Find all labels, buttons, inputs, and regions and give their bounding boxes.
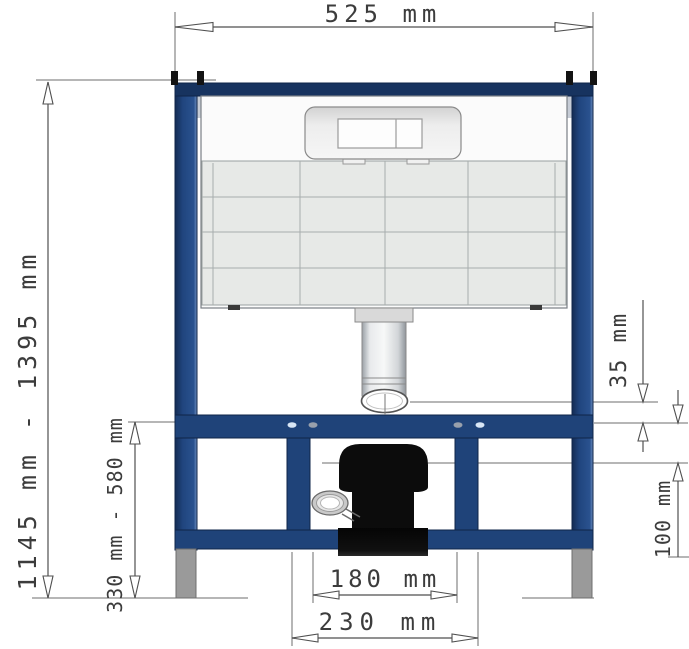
- frame-rail-left: [175, 83, 197, 550]
- waste-outlet-bend: [338, 444, 428, 556]
- frame-strut-right: [455, 438, 478, 530]
- wall-bracket-tab-2: [197, 71, 204, 85]
- cistern-foot-mark-right: [530, 305, 542, 310]
- arrow-230-left: [292, 634, 318, 642]
- arrow-1145-top: [43, 82, 53, 104]
- adjustable-foot-right: [572, 549, 592, 598]
- arrow-35-top: [638, 384, 648, 402]
- flush-pipe-flange: [355, 308, 413, 322]
- arrow-330-bottom: [130, 576, 140, 598]
- adjustable-foot-left: [176, 549, 196, 598]
- outlet-bend-flange: [338, 528, 428, 556]
- arrow-330-top: [130, 422, 140, 444]
- technical-drawing-wc-frame: 525 mm 1145 mm - 1395 mm 330 mm - 580 mm…: [0, 0, 689, 649]
- cistern-foot-mark-left: [228, 305, 240, 310]
- fixing-hole-1: [288, 422, 297, 428]
- concealed-cistern: [201, 96, 567, 310]
- wall-bracket-tab-1: [171, 71, 178, 85]
- outlet-bend-dome: [339, 444, 428, 532]
- connector-opening: [321, 497, 340, 509]
- frame-crossbar-upper: [175, 415, 593, 438]
- frame-rail-right: [572, 83, 593, 550]
- wall-bracket-tab-3: [566, 71, 573, 85]
- arrow-525-right: [555, 23, 593, 32]
- flush-bend-pipe: [355, 308, 413, 415]
- fixing-hole-2: [309, 422, 318, 428]
- arrow-525-left: [175, 23, 213, 32]
- label-width-outer: 230 mm: [319, 608, 442, 636]
- arrow-1145-bottom: [43, 576, 53, 598]
- flush-pipe-body: [362, 322, 406, 396]
- arrow-35-bottom: [638, 423, 648, 441]
- label-outlet-offset: 100 mm: [651, 480, 675, 558]
- label-flush-bend-offset: 35 mm: [607, 312, 632, 388]
- flush-button-large: [338, 119, 422, 148]
- fixing-hole-4: [476, 422, 485, 428]
- wall-bracket-tab-4: [590, 71, 597, 85]
- label-width-inner: 180 mm: [330, 565, 441, 593]
- frame-top-bar: [175, 83, 593, 96]
- cistern-panel-grid: [202, 161, 566, 305]
- label-width-top: 525 mm: [325, 0, 442, 28]
- arrow-230-right: [452, 634, 478, 642]
- label-height-lower: 330 mm - 580 mm: [103, 417, 127, 613]
- frame-strut-left: [287, 438, 310, 530]
- arrow-100-top: [673, 405, 683, 423]
- arrow-100-bottom: [673, 463, 683, 481]
- label-height-overall: 1145 mm - 1395 mm: [13, 250, 42, 591]
- fixing-hole-3: [454, 422, 463, 428]
- drawing-canvas: 525 mm 1145 mm - 1395 mm 330 mm - 580 mm…: [0, 0, 689, 649]
